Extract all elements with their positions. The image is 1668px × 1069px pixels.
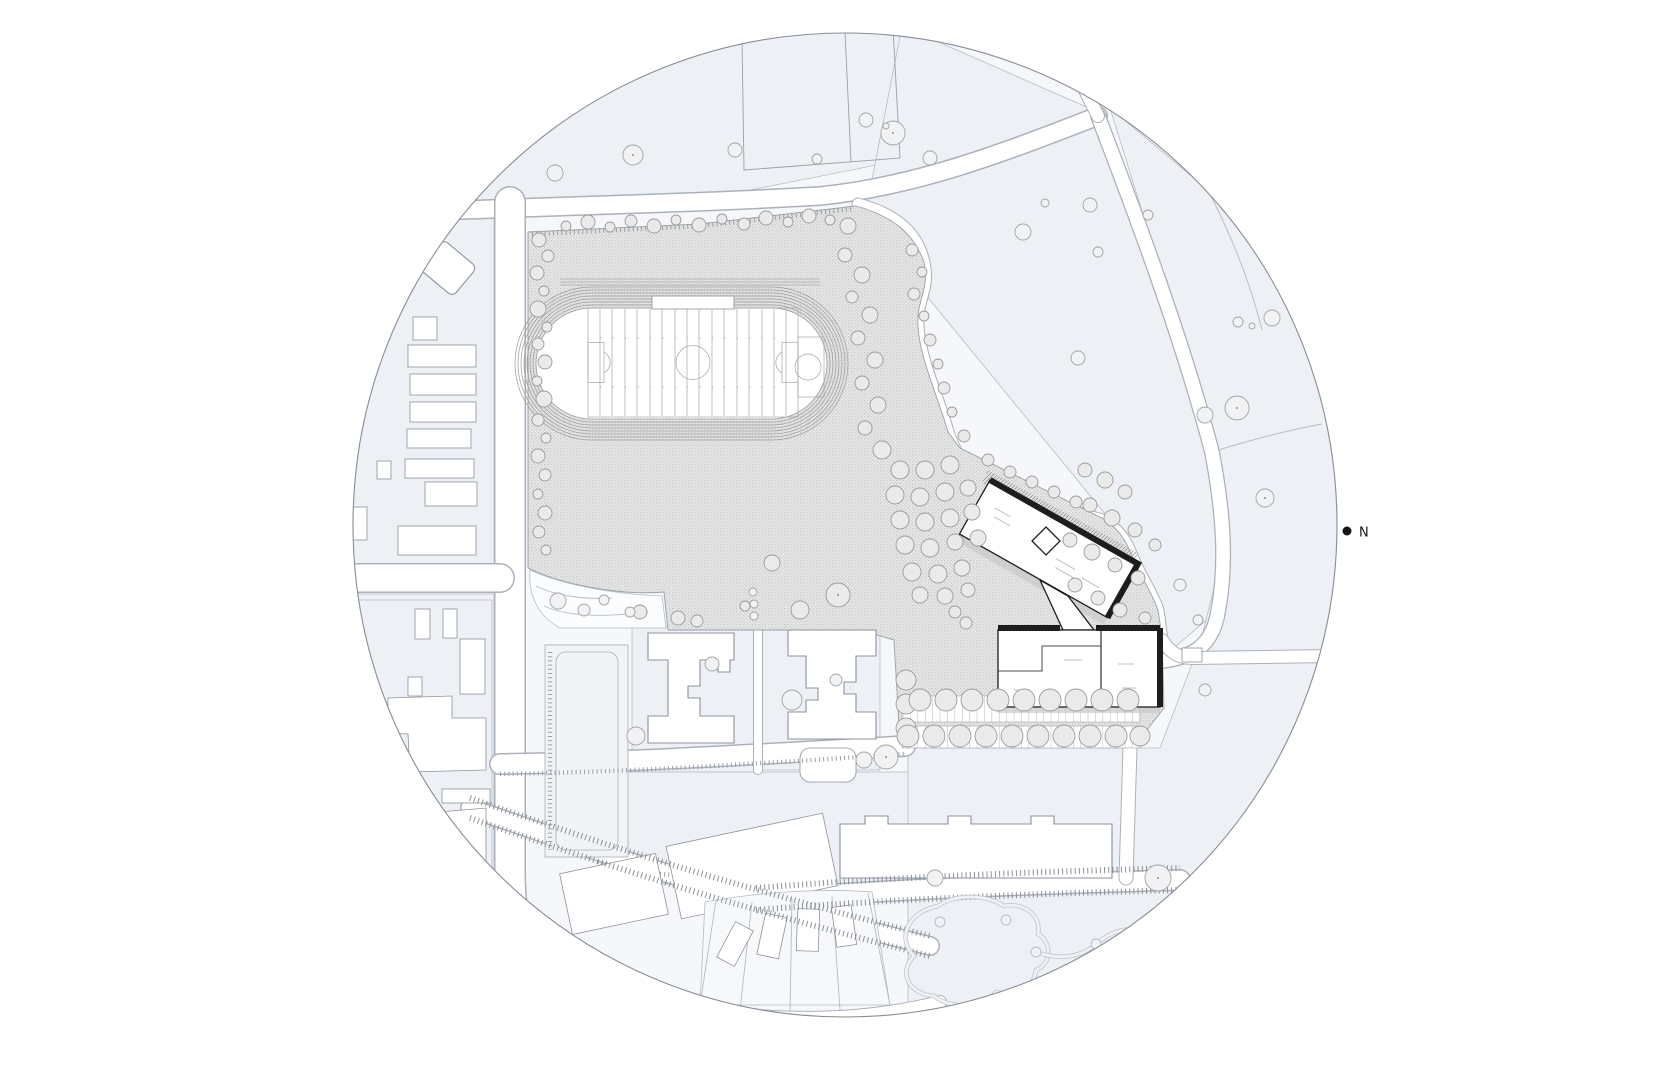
context-building — [415, 609, 430, 639]
track-infield — [536, 308, 827, 419]
context-building — [353, 507, 367, 540]
context-building — [377, 461, 391, 479]
kiosk — [1182, 648, 1202, 662]
field-annex — [652, 296, 734, 309]
context-building — [408, 345, 476, 367]
context-building — [408, 677, 422, 696]
north-indicator: N — [1343, 526, 1369, 541]
context-building — [440, 808, 486, 873]
garden-plots-south — [700, 890, 890, 1012]
context-building — [407, 429, 471, 448]
context-building — [410, 374, 476, 395]
north-label: N — [1359, 526, 1369, 541]
context-building — [425, 482, 477, 506]
context-building — [413, 317, 437, 340]
context-pavilion — [800, 748, 856, 782]
north-dot-icon — [1343, 527, 1352, 536]
context-building — [443, 609, 457, 638]
garden-small-trees — [749, 588, 758, 620]
site-plan-drawing: N — [0, 0, 1668, 1069]
context-building — [410, 402, 476, 422]
context-building — [460, 639, 485, 694]
lane-park-edge — [1126, 748, 1130, 878]
context-building — [405, 459, 474, 478]
site-content — [340, 20, 1350, 1030]
plot-cabin — [796, 909, 819, 952]
context-building — [398, 526, 476, 555]
site-plan-page: N — [0, 0, 1668, 1069]
